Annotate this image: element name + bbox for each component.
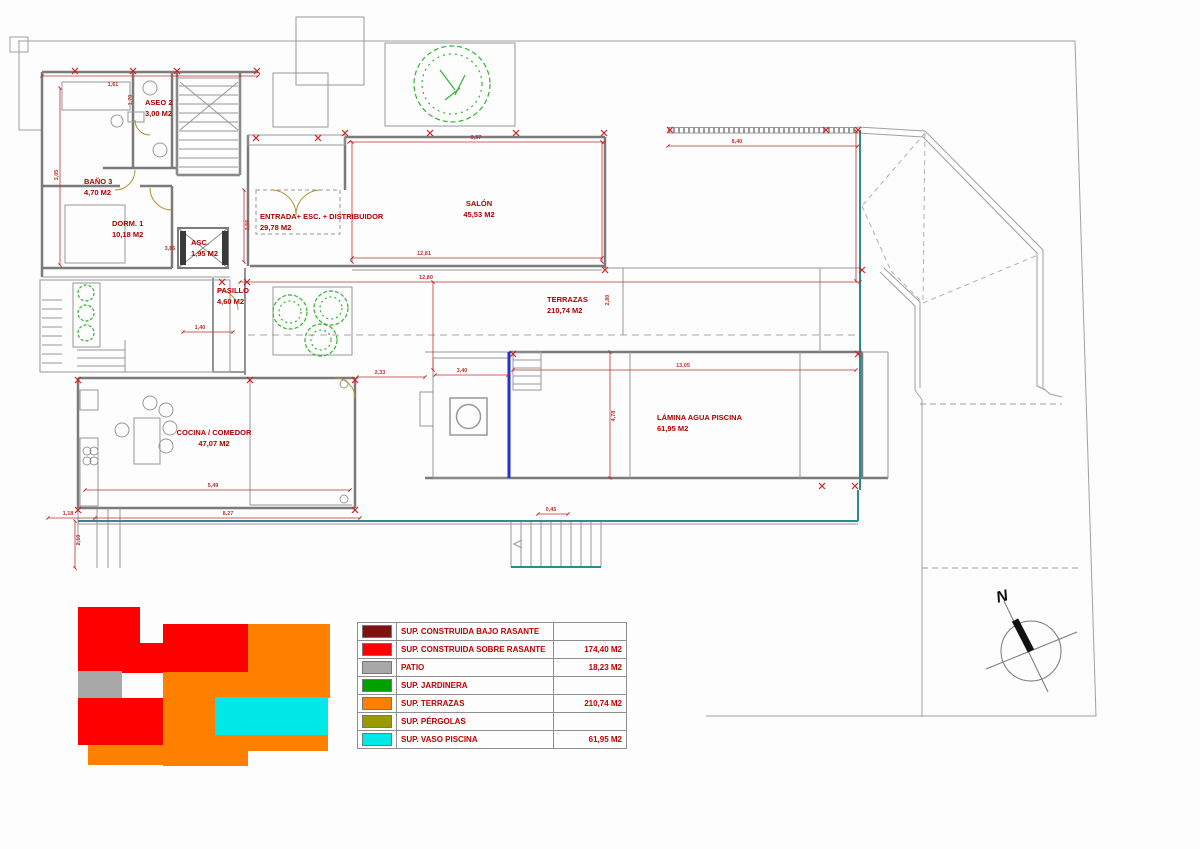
dimension-label: 1,40 xyxy=(195,325,206,331)
architectural-plan-page: { "legend": { "rows": [ {"label": "SUP. … xyxy=(0,0,1200,849)
dimension-label: 13,05 xyxy=(676,363,690,369)
dimension-label: 12,81 xyxy=(417,251,431,257)
dimension-label: 1,61 xyxy=(108,82,119,88)
dimension-label: 5,49 xyxy=(208,483,219,489)
legend-swatch-patio xyxy=(362,661,392,674)
legend-row: SUP. PÉRGOLAS xyxy=(358,713,627,731)
room-label-l-mina-agua-piscina: LÁMINA AGUA PISCINA61,95 M2 xyxy=(657,412,742,434)
legend-row: SUP. TERRAZAS 210,74 M2 xyxy=(358,695,627,713)
dimension-label: 2,10 xyxy=(76,535,82,546)
key-plan-block-pool xyxy=(215,697,328,735)
room-label-dorm-1: DORM. 110,18 M2 xyxy=(112,218,143,240)
room-label-pasillo: PASILLO4,60 M2 xyxy=(217,285,249,307)
key-plan-block-terrace xyxy=(248,624,330,698)
legend-swatch-jardinera xyxy=(362,679,392,692)
dimension-label: 8,27 xyxy=(223,511,234,517)
legend-value xyxy=(554,677,627,695)
legend-value: 174,40 M2 xyxy=(554,641,627,659)
key-plan-block-terrace xyxy=(248,735,328,751)
dimension-label: 0,45 xyxy=(546,507,557,513)
legend-row: SUP. VASO PISCINA 61,95 M2 xyxy=(358,731,627,749)
room-label-aseo-2: ASEO 23,00 M2 xyxy=(145,97,173,119)
north-label: N xyxy=(994,587,1010,607)
terrace-edges xyxy=(78,130,860,567)
dimension-label: 9,97 xyxy=(471,135,482,141)
legend-row: SUP. JARDINERA xyxy=(358,677,627,695)
legend-swatch-sobre-rasante xyxy=(362,643,392,656)
key-plan-block-patio xyxy=(78,671,122,699)
legend-row: SUP. CONSTRUIDA SOBRE RASANTE 174,40 M2 xyxy=(358,641,627,659)
dimension-label: 3,86 xyxy=(165,246,176,252)
room-label-cocina-comedor: COCINA / COMEDOR47,07 M2 xyxy=(177,427,252,449)
legend-value xyxy=(554,713,627,731)
legend-value: 210,74 M2 xyxy=(554,695,627,713)
dimension-label: 12,80 xyxy=(419,275,433,281)
legend-label: SUP. VASO PISCINA xyxy=(397,731,554,749)
key-plan-block-built xyxy=(163,624,248,673)
legend-swatch-terrazas xyxy=(362,697,392,710)
dimension-label: 3,40 xyxy=(457,368,468,374)
legend-label: PATIO xyxy=(397,659,554,677)
dimension-label: 2,56 xyxy=(245,220,251,231)
legend-table: SUP. CONSTRUIDA BAJO RASANTE SUP. CONSTR… xyxy=(357,622,627,749)
legend-value: 61,95 M2 xyxy=(554,731,627,749)
legend-swatch-pergolas xyxy=(362,715,392,728)
dimension-label: 2,80 xyxy=(605,295,611,306)
dimension-label: 1,18 xyxy=(63,511,74,517)
dimension-label: 2,33 xyxy=(375,370,386,376)
room-label-sal-n: SALÓN45,53 M2 xyxy=(463,198,494,220)
room-label-ba-o-3: BAÑO 34,70 M2 xyxy=(84,176,112,198)
legend-label: SUP. CONSTRUIDA BAJO RASANTE xyxy=(397,623,554,641)
trees-group xyxy=(78,46,490,356)
legend-label: SUP. JARDINERA xyxy=(397,677,554,695)
dimension-lines xyxy=(42,76,860,568)
legend-swatch-bajo-rasante xyxy=(362,625,392,638)
room-label-asc-: ASC.1,95 M2 xyxy=(191,237,218,259)
legend-label: SUP. PÉRGOLAS xyxy=(397,713,554,731)
dimension-label: 1,70 xyxy=(128,95,134,106)
dimension-label: 8,40 xyxy=(732,139,743,145)
legend-row: SUP. CONSTRUIDA BAJO RASANTE xyxy=(358,623,627,641)
dimension-label: 3,05 xyxy=(54,170,60,181)
legend-value xyxy=(554,623,627,641)
legend-value: 18,23 M2 xyxy=(554,659,627,677)
legend-label: SUP. TERRAZAS xyxy=(397,695,554,713)
legend-row: PATIO 18,23 M2 xyxy=(358,659,627,677)
room-label-terrazas: TERRAZAS210,74 M2 xyxy=(547,294,588,316)
legend-label: SUP. CONSTRUIDA SOBRE RASANTE xyxy=(397,641,554,659)
compass-icon xyxy=(986,601,1077,692)
legend-swatch-vaso-piscina xyxy=(362,733,392,746)
building-walls xyxy=(42,72,888,508)
key-plan-block-terrace xyxy=(88,745,248,765)
key-plan-block-built xyxy=(140,643,164,673)
room-label-entrada-esc-distribuidor: ENTRADA+ ESC. + DISTRIBUIDOR29,78 M2 xyxy=(260,211,383,233)
key-plan-block-built xyxy=(78,698,163,745)
key-plan-block-built xyxy=(78,607,140,673)
dimension-label: 4,78 xyxy=(611,411,617,422)
